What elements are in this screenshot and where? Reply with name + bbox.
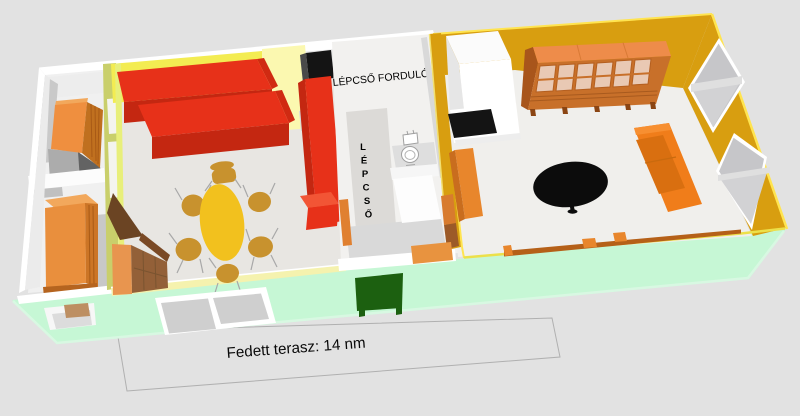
svg-text:C: C [363,183,370,194]
svg-text:L: L [360,142,366,153]
svg-text:P: P [362,169,369,180]
svg-text:É: É [361,156,367,167]
svg-text:S: S [364,196,370,207]
svg-text:Ő: Ő [365,209,372,221]
